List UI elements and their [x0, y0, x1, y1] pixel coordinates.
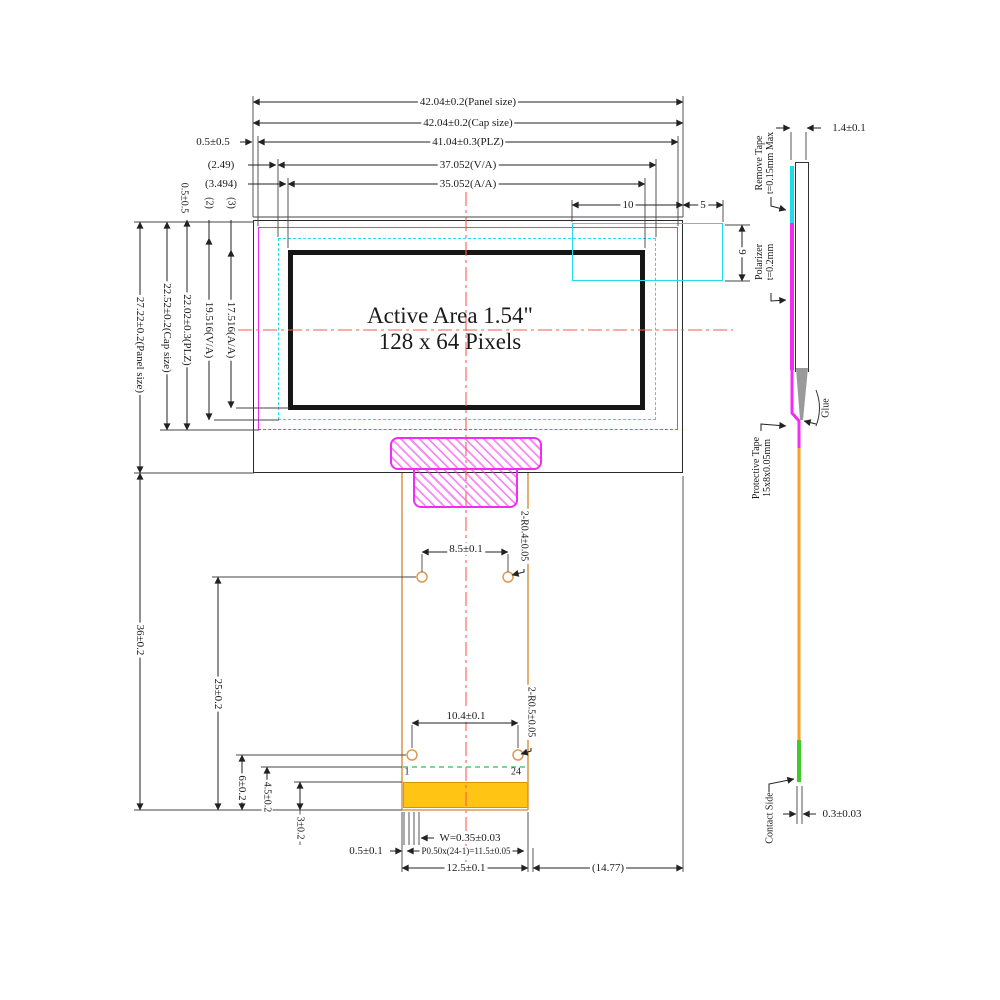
dim-panel-width: 42.04±0.2(Panel size) — [418, 96, 518, 108]
dim-pad-pitch: P0.50x(24-1)=11.5±0.05 — [420, 846, 513, 856]
glue-bracket — [816, 390, 820, 426]
dim-plz-width: 41.04±0.3(PLZ) — [430, 136, 505, 148]
dim-va-height: 19.516(V/A) — [203, 300, 215, 361]
pin-number-first: 1 — [405, 766, 410, 777]
dim-lower-holes-radius: 2-R0.5±0.05 — [525, 685, 536, 740]
dim-aa-width: 35.052(A/A) — [438, 178, 499, 190]
protective-tape-label-line1: Protective Tape — [751, 437, 762, 499]
dim-va-left-gap: (2.49) — [206, 159, 237, 171]
dim-tape-width-inner: 10 — [621, 199, 636, 211]
dim-aa-top-gap: (3) — [225, 195, 236, 211]
active-area-title-line2: 128 x 64 Pixels — [379, 329, 521, 355]
dim-aa-height: 17.516(A/A) — [225, 300, 237, 361]
remove-tape-label-line1: Remove Tape — [754, 132, 765, 194]
dim-pad-edge: 0.5±0.1 — [347, 845, 385, 857]
dim-va-width: 37.052(V/A) — [438, 159, 499, 171]
oled-module-dimension-drawing: Active Area 1.54" 128 x 64 Pixels 42.04±… — [0, 0, 1000, 1000]
dim-fpc-total-length: 36±0.2 — [134, 623, 146, 658]
dim-tape-width-outer: 5 — [698, 199, 708, 211]
dim-va-top-gap: (2) — [203, 195, 214, 211]
dim-fpc-width: 12.5±0.1 — [444, 862, 487, 874]
active-area-title-line1: Active Area 1.54" — [367, 303, 533, 329]
centerlines — [238, 192, 733, 862]
dim-upper-holes-length: 25±0.2 — [212, 677, 224, 712]
extension-lines — [134, 96, 806, 872]
dim-plz-top-gap: 0.5±0.5 — [178, 181, 189, 216]
dim-pad-width: W=0.35±0.03 — [437, 832, 502, 844]
dim-lower-holes-span: 10.4±0.1 — [444, 710, 487, 722]
dim-cap-height: 22.52±0.2(Cap size) — [161, 281, 173, 374]
dim-fpc-thickness: 0.3±0.03 — [820, 808, 863, 820]
polarizer-label-line1: Polarizer — [754, 244, 765, 280]
dim-panel-height: 27.22±0.2(Panel size) — [134, 295, 146, 395]
dim-lower-holes-length: 6±0.2 — [236, 773, 248, 802]
dim-cap-width: 42.04±0.2(Cap size) — [421, 117, 514, 129]
dim-upper-holes-span: 8.5±0.1 — [447, 543, 485, 555]
dim-module-thickness: 1.4±0.1 — [830, 122, 868, 134]
side-view-glue-wedge — [796, 368, 808, 420]
polarizer-label-line2: t=0.2mm — [765, 244, 776, 280]
remove-tape-label-line2: t=0.15mm Max — [765, 132, 776, 194]
polarizer-label: Polarizer t=0.2mm — [754, 244, 776, 280]
protective-tape-label: Protective Tape 15x8x0.05mm — [751, 437, 773, 499]
protective-tape-label-line2: 15x8x0.05mm — [762, 437, 773, 499]
remove-tape-label: Remove Tape t=0.15mm Max — [754, 132, 776, 194]
dim-aa-left-gap: (3.494) — [203, 178, 239, 190]
alignment-holes — [407, 572, 523, 760]
fpc-outline — [402, 473, 528, 810]
dim-contact-length: 3±0.2 — [294, 815, 305, 842]
side-view-stack — [792, 368, 820, 782]
dim-right-offset: (14.77) — [590, 862, 626, 874]
pin-number-last: 24 — [511, 766, 521, 777]
dim-plz-left-gap: 0.5±0.5 — [194, 136, 232, 148]
dim-tape-height: 9 — [736, 247, 748, 257]
dim-plz-height: 22.02±0.3(PLZ) — [181, 292, 193, 367]
glue-label: Glue — [820, 398, 831, 417]
dim-upper-holes-radius: 2-R0.4±0.05 — [518, 509, 529, 564]
contact-side-label: Contact Side — [764, 792, 775, 843]
dim-contact-edge: 4.5±0.2 — [261, 780, 272, 815]
